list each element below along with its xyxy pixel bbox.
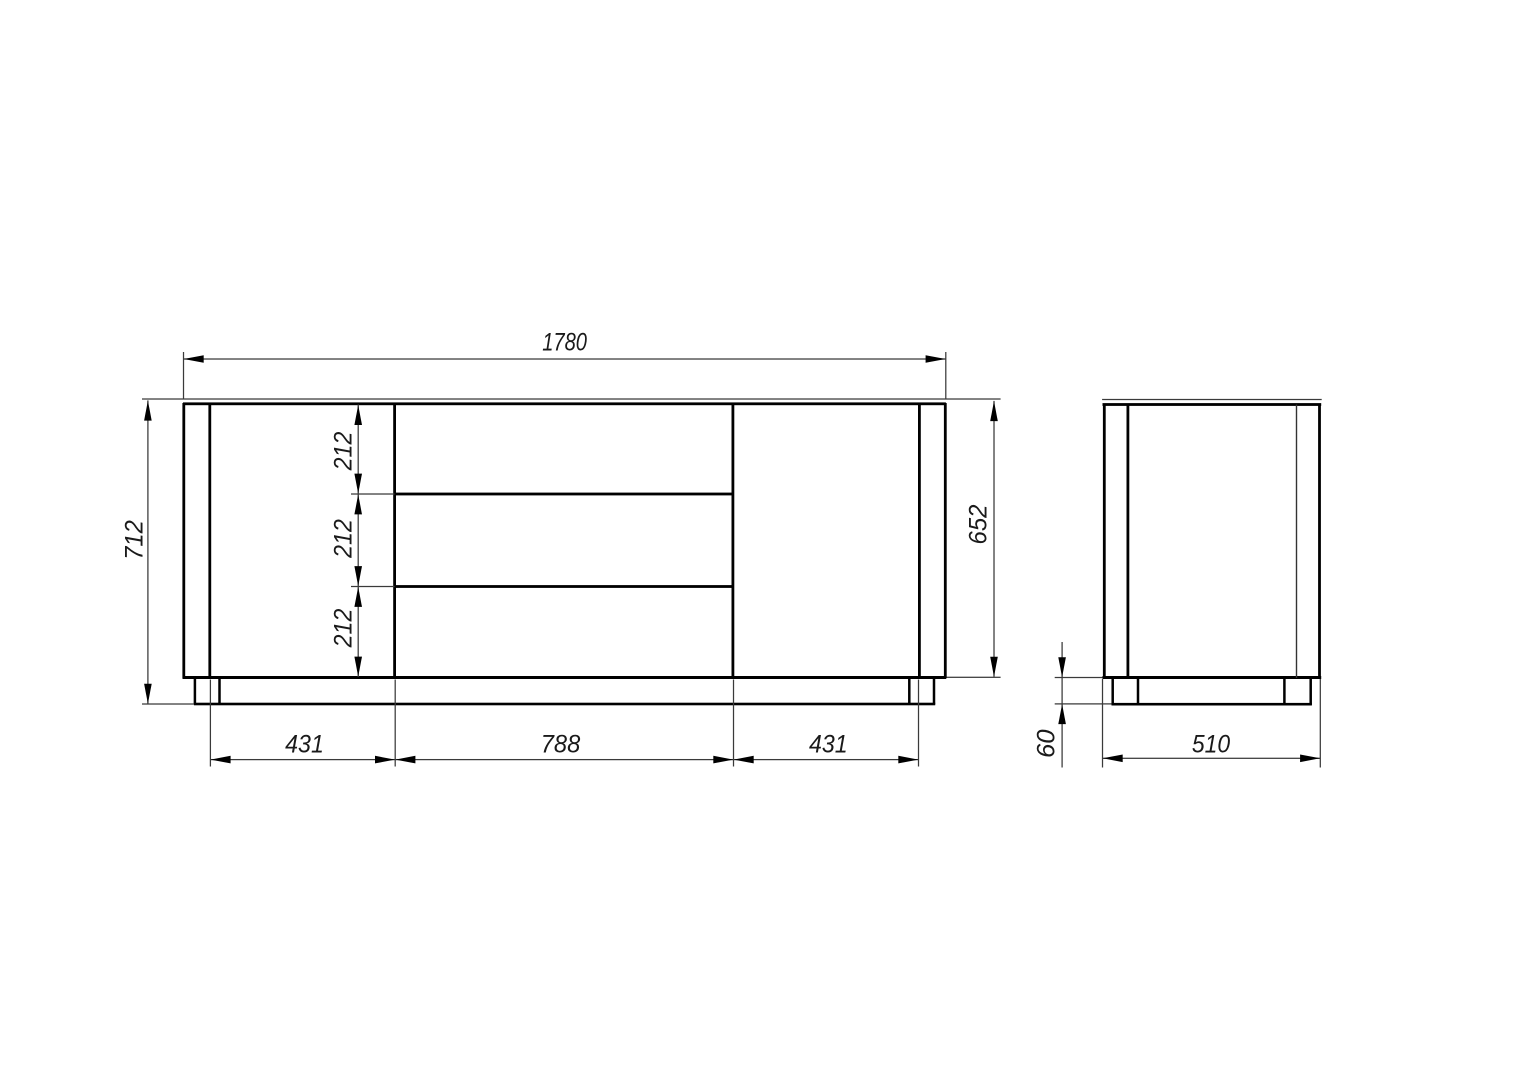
svg-text:712: 712 bbox=[121, 520, 149, 560]
svg-text:1780: 1780 bbox=[542, 327, 587, 356]
svg-text:431: 431 bbox=[285, 730, 324, 758]
svg-text:212: 212 bbox=[330, 519, 358, 559]
svg-text:431: 431 bbox=[809, 730, 848, 758]
svg-text:60: 60 bbox=[1033, 729, 1061, 758]
svg-text:212: 212 bbox=[330, 431, 358, 471]
svg-text:510: 510 bbox=[1192, 731, 1231, 759]
svg-text:652: 652 bbox=[965, 504, 993, 544]
svg-text:212: 212 bbox=[330, 608, 358, 648]
svg-text:788: 788 bbox=[541, 731, 581, 759]
